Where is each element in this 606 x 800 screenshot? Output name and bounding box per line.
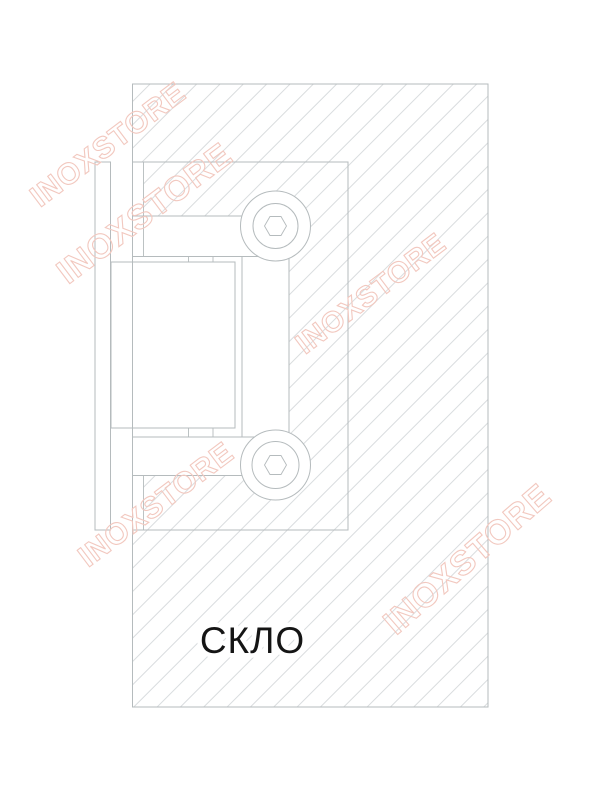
glass-hinge-section-drawing: INOXSTORE INOXSTORE INOXSTORE INOXSTORE … — [0, 0, 606, 800]
technical-drawing-page: INOXSTORE INOXSTORE INOXSTORE INOXSTORE … — [0, 0, 606, 800]
glass-label-group: СКЛО СКЛО — [200, 620, 305, 661]
glass-label: СКЛО — [200, 620, 305, 661]
